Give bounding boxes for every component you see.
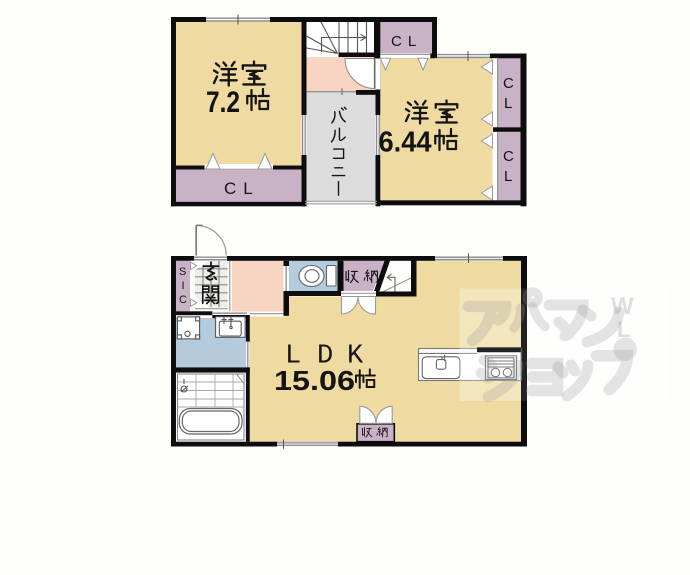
svg-text:W: W xyxy=(611,293,634,320)
svg-text:L: L xyxy=(504,95,512,112)
svg-text:CL: CL xyxy=(391,33,422,50)
svg-text:6.44: 6.44 xyxy=(379,127,432,159)
svg-text:S: S xyxy=(179,266,186,278)
svg-text:C: C xyxy=(503,75,514,92)
svg-text:I: I xyxy=(182,280,185,292)
svg-text:7.2: 7.2 xyxy=(206,86,240,119)
svg-text:C: C xyxy=(179,294,187,306)
svg-text:15.06: 15.06 xyxy=(274,365,355,396)
svg-text:CL: CL xyxy=(224,179,260,198)
svg-text:L: L xyxy=(617,317,630,342)
svg-text:L: L xyxy=(504,168,512,185)
svg-text:C: C xyxy=(503,148,514,165)
